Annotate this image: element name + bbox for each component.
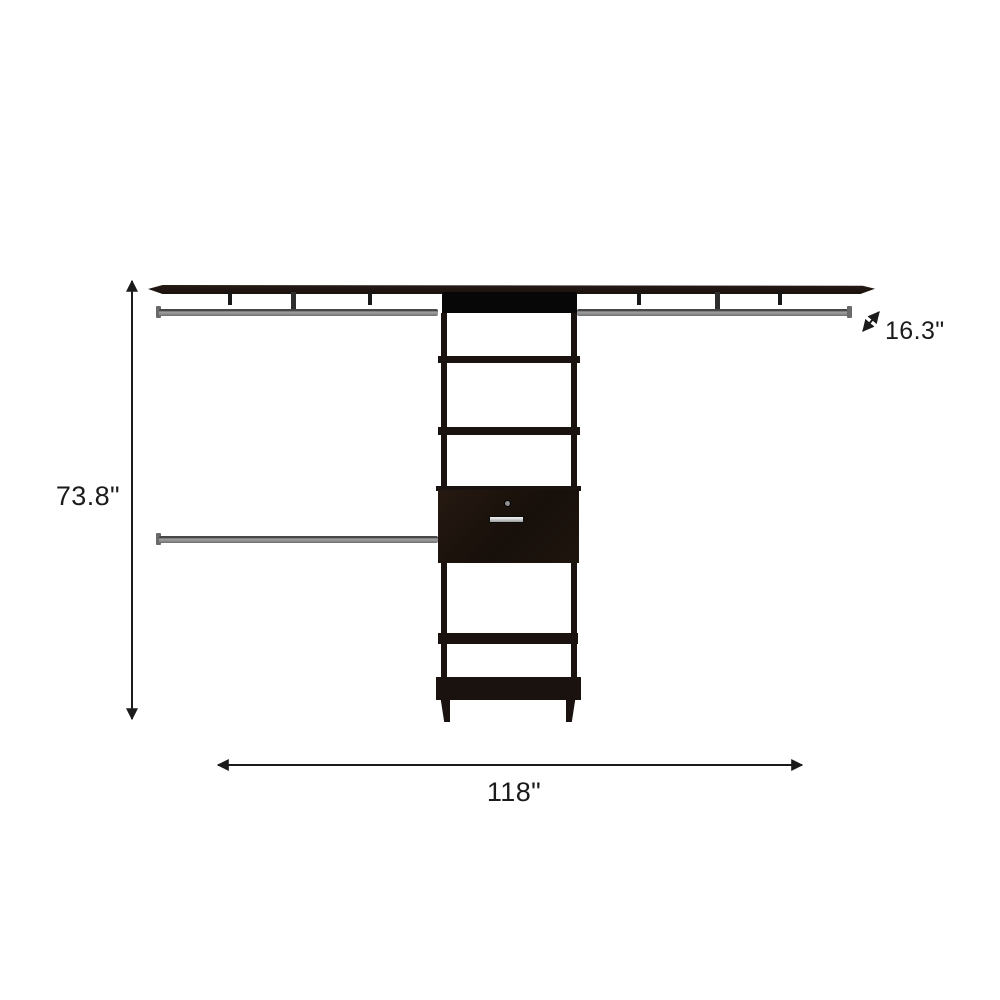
tower-bottom-shelf <box>436 677 581 700</box>
shelf-bracket <box>228 292 232 305</box>
hanging-rod-middle-left <box>159 536 438 543</box>
tower-shelf <box>438 427 580 435</box>
closet-dimension-diagram: 73.8" 118" 16.3" <box>0 0 1000 1000</box>
depth-dimension-label: 16.3" <box>885 317 945 346</box>
drawer-handle <box>489 516 524 523</box>
hanging-rod-top-right <box>577 309 849 316</box>
horizontal-double-arrow-icon <box>209 753 811 777</box>
tower-top-panel <box>442 292 577 313</box>
width-dimension-label: 118" <box>444 777 584 808</box>
hanging-rod-top-left <box>159 309 438 316</box>
height-dimension-label: 73.8" <box>28 481 120 512</box>
shelf-bracket <box>368 292 372 305</box>
tower-right-leg <box>566 700 576 722</box>
tower-shelf <box>438 356 580 363</box>
drawer <box>438 490 579 563</box>
shelf-bracket <box>778 292 782 305</box>
shelf-bracket <box>637 292 641 305</box>
vertical-double-arrow-icon <box>119 272 145 728</box>
tower-shelf <box>438 633 578 644</box>
tower-left-leg <box>440 700 450 722</box>
drawer-lock-icon <box>505 501 510 506</box>
